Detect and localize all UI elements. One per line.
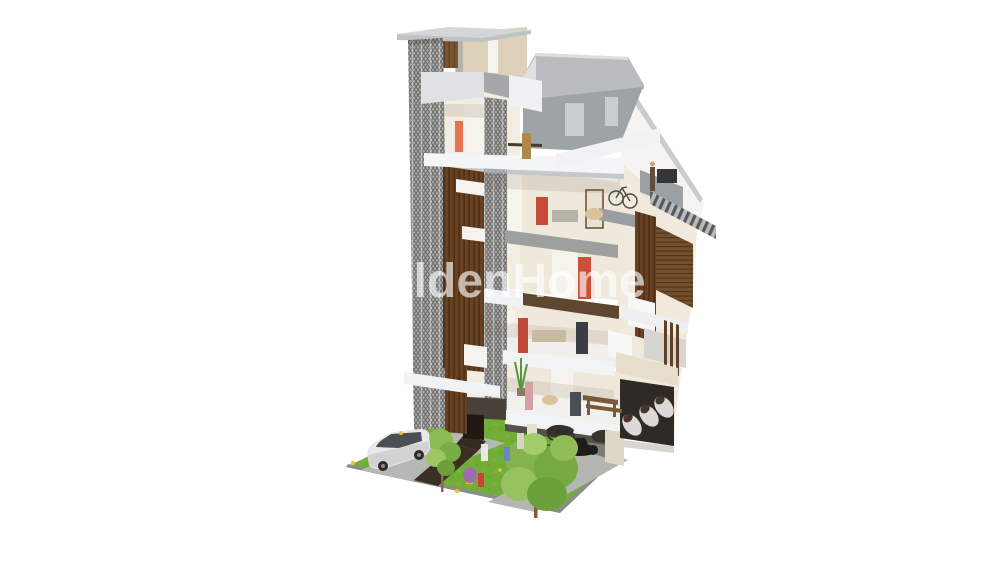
- svg-text:GoldenHome: GoldenHome: [347, 255, 646, 308]
